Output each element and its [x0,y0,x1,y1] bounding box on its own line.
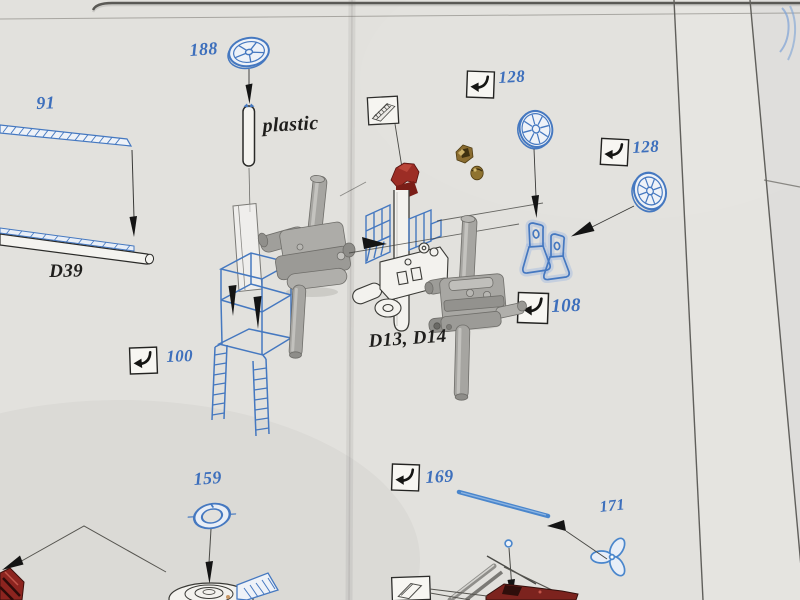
label-part-100: 100 [166,347,193,365]
label-plastic-note: plastic [262,113,319,136]
label-part-159: 159 [193,468,222,488]
instruction-sheet-photo: 91 D39 188 plastic 128 128 108 100 D13, … [0,0,800,600]
pe-sheet-icon [367,96,398,125]
label-part-d13-d14: D13, D14 [368,327,447,351]
pe-part-icon-bottom [392,576,431,600]
label-part-128-left: 128 [498,68,526,86]
label-part-128-right: 128 [632,138,660,156]
label-part-171: 171 [599,497,626,516]
label-part-188: 188 [189,39,218,59]
bend-icon-128-left [467,71,495,98]
bend-icon-100 [130,347,158,374]
label-part-108: 108 [551,296,581,316]
label-part-91: 91 [36,93,55,112]
label-part-169: 169 [425,467,454,486]
label-part-d39: D39 [49,261,83,281]
bend-icon-128-right [600,138,628,165]
diagram-artwork [0,0,800,600]
bend-icon-169 [392,464,420,491]
